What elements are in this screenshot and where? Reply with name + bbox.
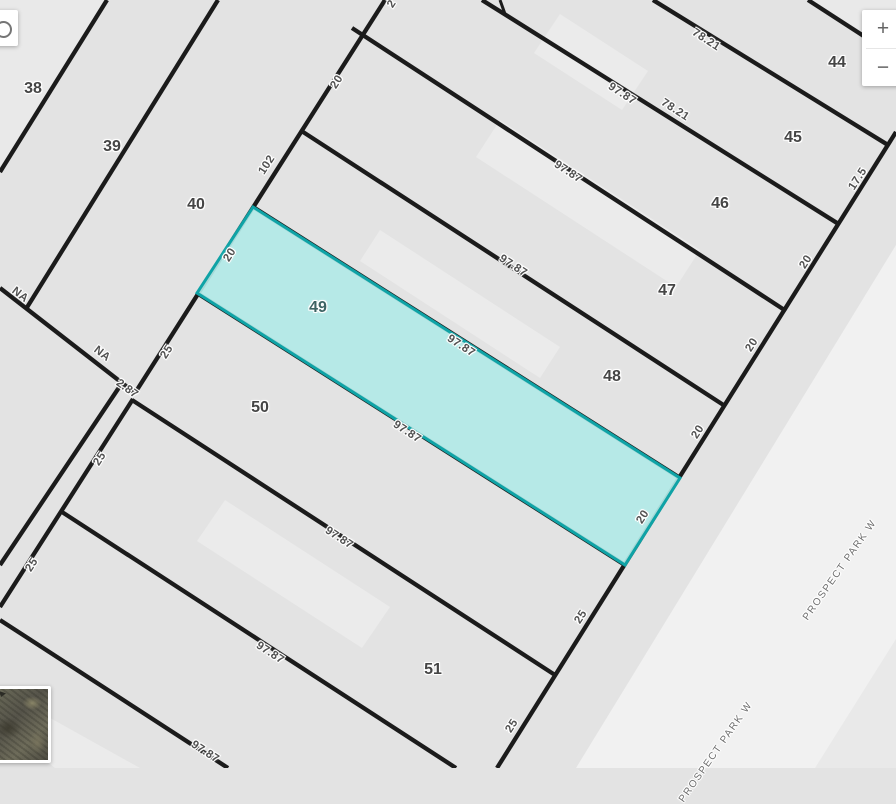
zoom-out-button[interactable]: − [862,49,896,87]
search-icon [0,21,12,38]
map-canvas[interactable] [0,0,896,768]
map-viewer: { "map": { "highlighted_parcel": "49", "… [0,0,896,768]
zoom-in-button[interactable]: + [862,10,896,48]
minimap-thumbnail[interactable] [0,686,51,763]
zoom-controls: + − [862,10,896,86]
satellite-image [0,689,48,760]
search-box[interactable] [0,10,18,46]
